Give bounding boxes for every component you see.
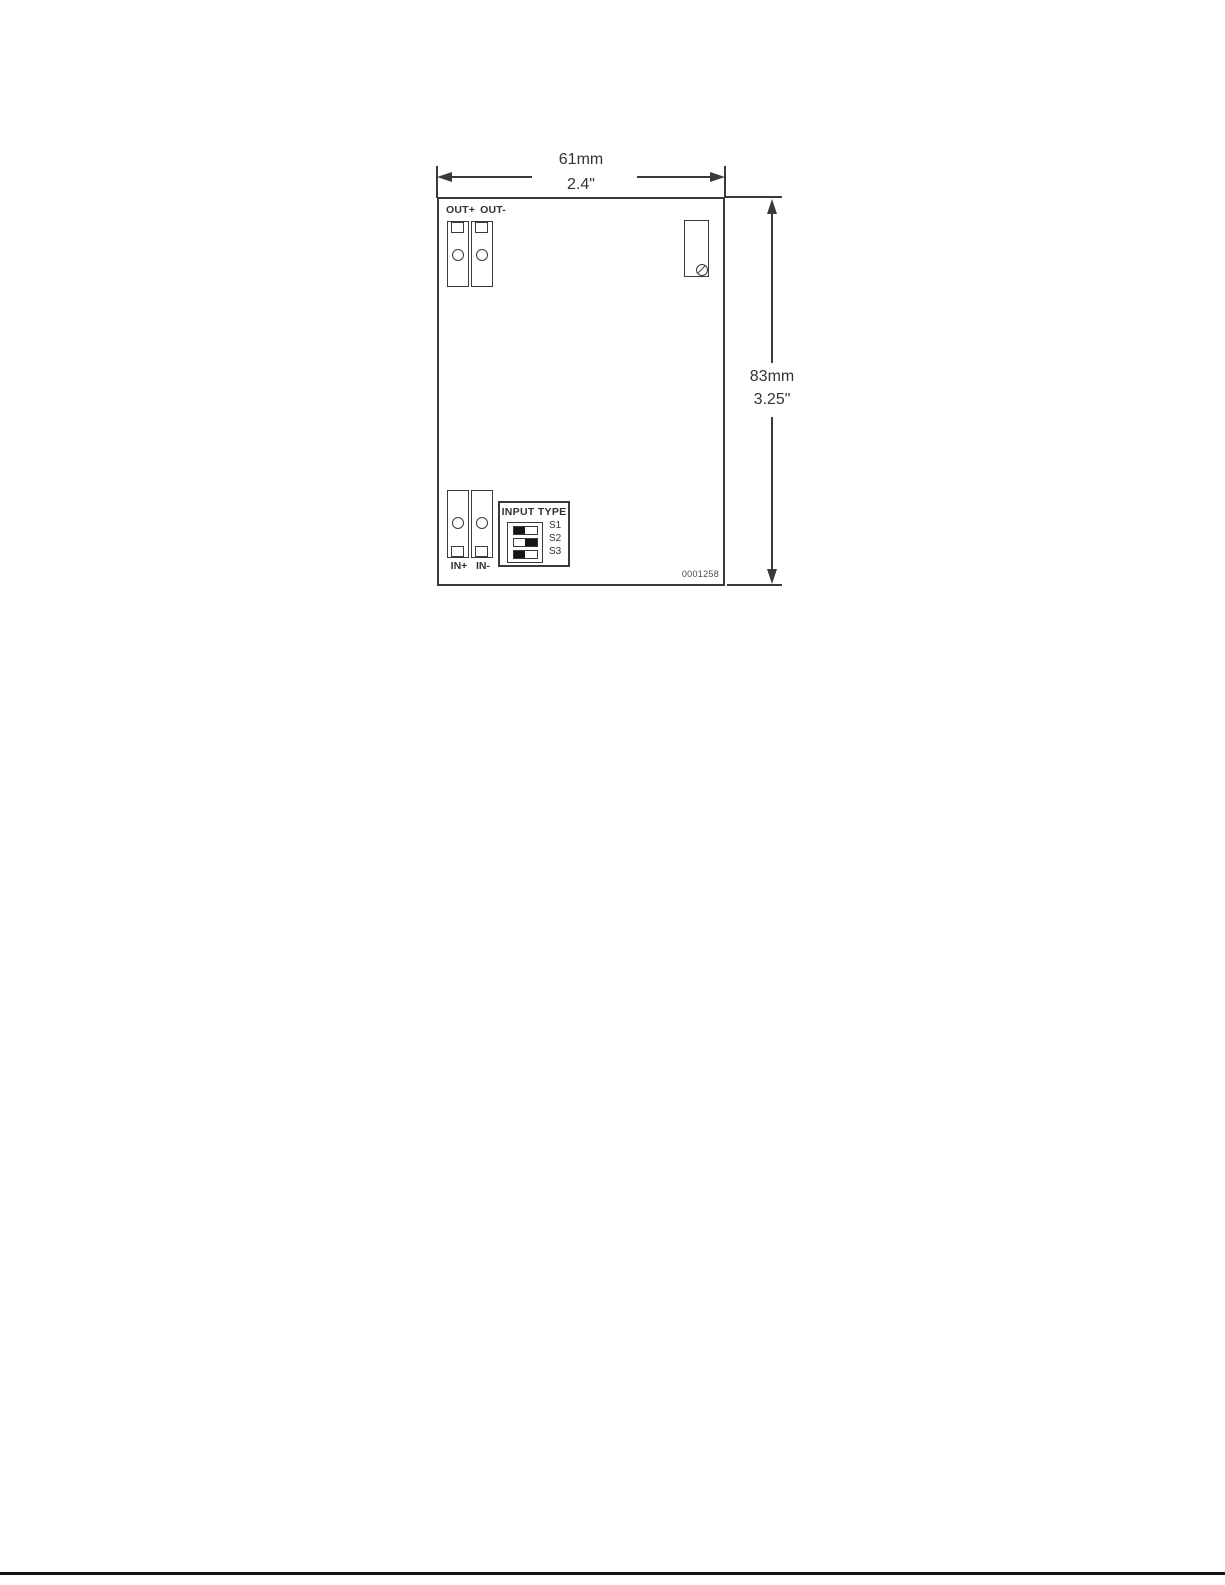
out-plus-screw-hole	[452, 249, 464, 261]
dip-switch-s3-label: S3	[549, 546, 561, 559]
width-mm-label: 61mm	[481, 150, 681, 170]
out-plus-terminal	[447, 221, 469, 287]
width-dim-line-left	[449, 176, 532, 178]
dip-switch-s1	[513, 526, 538, 535]
out-terminal-labels: OUT+ OUT-	[446, 204, 506, 216]
in-minus-wire-slot	[475, 546, 488, 557]
device-panel-outline: OUT+ OUT- IN+ IN- INPUT TYPE	[437, 197, 725, 586]
height-dim-line-top	[771, 211, 773, 363]
dip-switch-s1-label: S1	[549, 520, 561, 533]
dip-switch-block	[507, 522, 543, 563]
in-minus-label: IN-	[469, 560, 497, 572]
dip-switch-s3	[513, 550, 538, 559]
adjustment-slot	[684, 220, 709, 277]
dip-switch-s2	[513, 538, 538, 547]
input-type-title: INPUT TYPE	[500, 506, 568, 518]
out-minus-label: OUT-	[480, 204, 506, 216]
height-extension-tick-top	[725, 196, 782, 198]
width-inch-label: 2.4"	[481, 175, 681, 195]
dip-switch-s1-knob	[514, 527, 526, 534]
dip-switch-s2-label: S2	[549, 533, 561, 546]
width-dim-line-right	[637, 176, 713, 178]
in-plus-wire-slot	[451, 546, 464, 557]
dip-switch-s3-knob	[514, 551, 526, 558]
in-plus-screw-hole	[452, 517, 464, 529]
dip-switch-s2-knob	[525, 539, 537, 546]
out-minus-wire-slot	[475, 222, 488, 233]
in-minus-terminal	[471, 490, 493, 558]
in-plus-terminal	[447, 490, 469, 558]
page-footer-rule	[0, 1572, 1225, 1575]
height-extension-tick-bottom	[727, 584, 782, 586]
screw-head-icon	[696, 264, 708, 276]
height-dim-line-bottom	[771, 417, 773, 572]
out-minus-terminal	[471, 221, 493, 287]
input-type-box: INPUT TYPE S1 S2 S3	[498, 501, 570, 567]
out-plus-wire-slot	[451, 222, 464, 233]
in-minus-screw-hole	[476, 517, 488, 529]
part-number: 0001258	[609, 569, 719, 579]
dip-switch-labels: S1 S2 S3	[549, 520, 561, 558]
out-minus-screw-hole	[476, 249, 488, 261]
manual-page: 61mm 2.4" 83mm 3.25" OUT+ OUT-	[0, 0, 1225, 1585]
out-plus-label: OUT+	[446, 204, 475, 216]
